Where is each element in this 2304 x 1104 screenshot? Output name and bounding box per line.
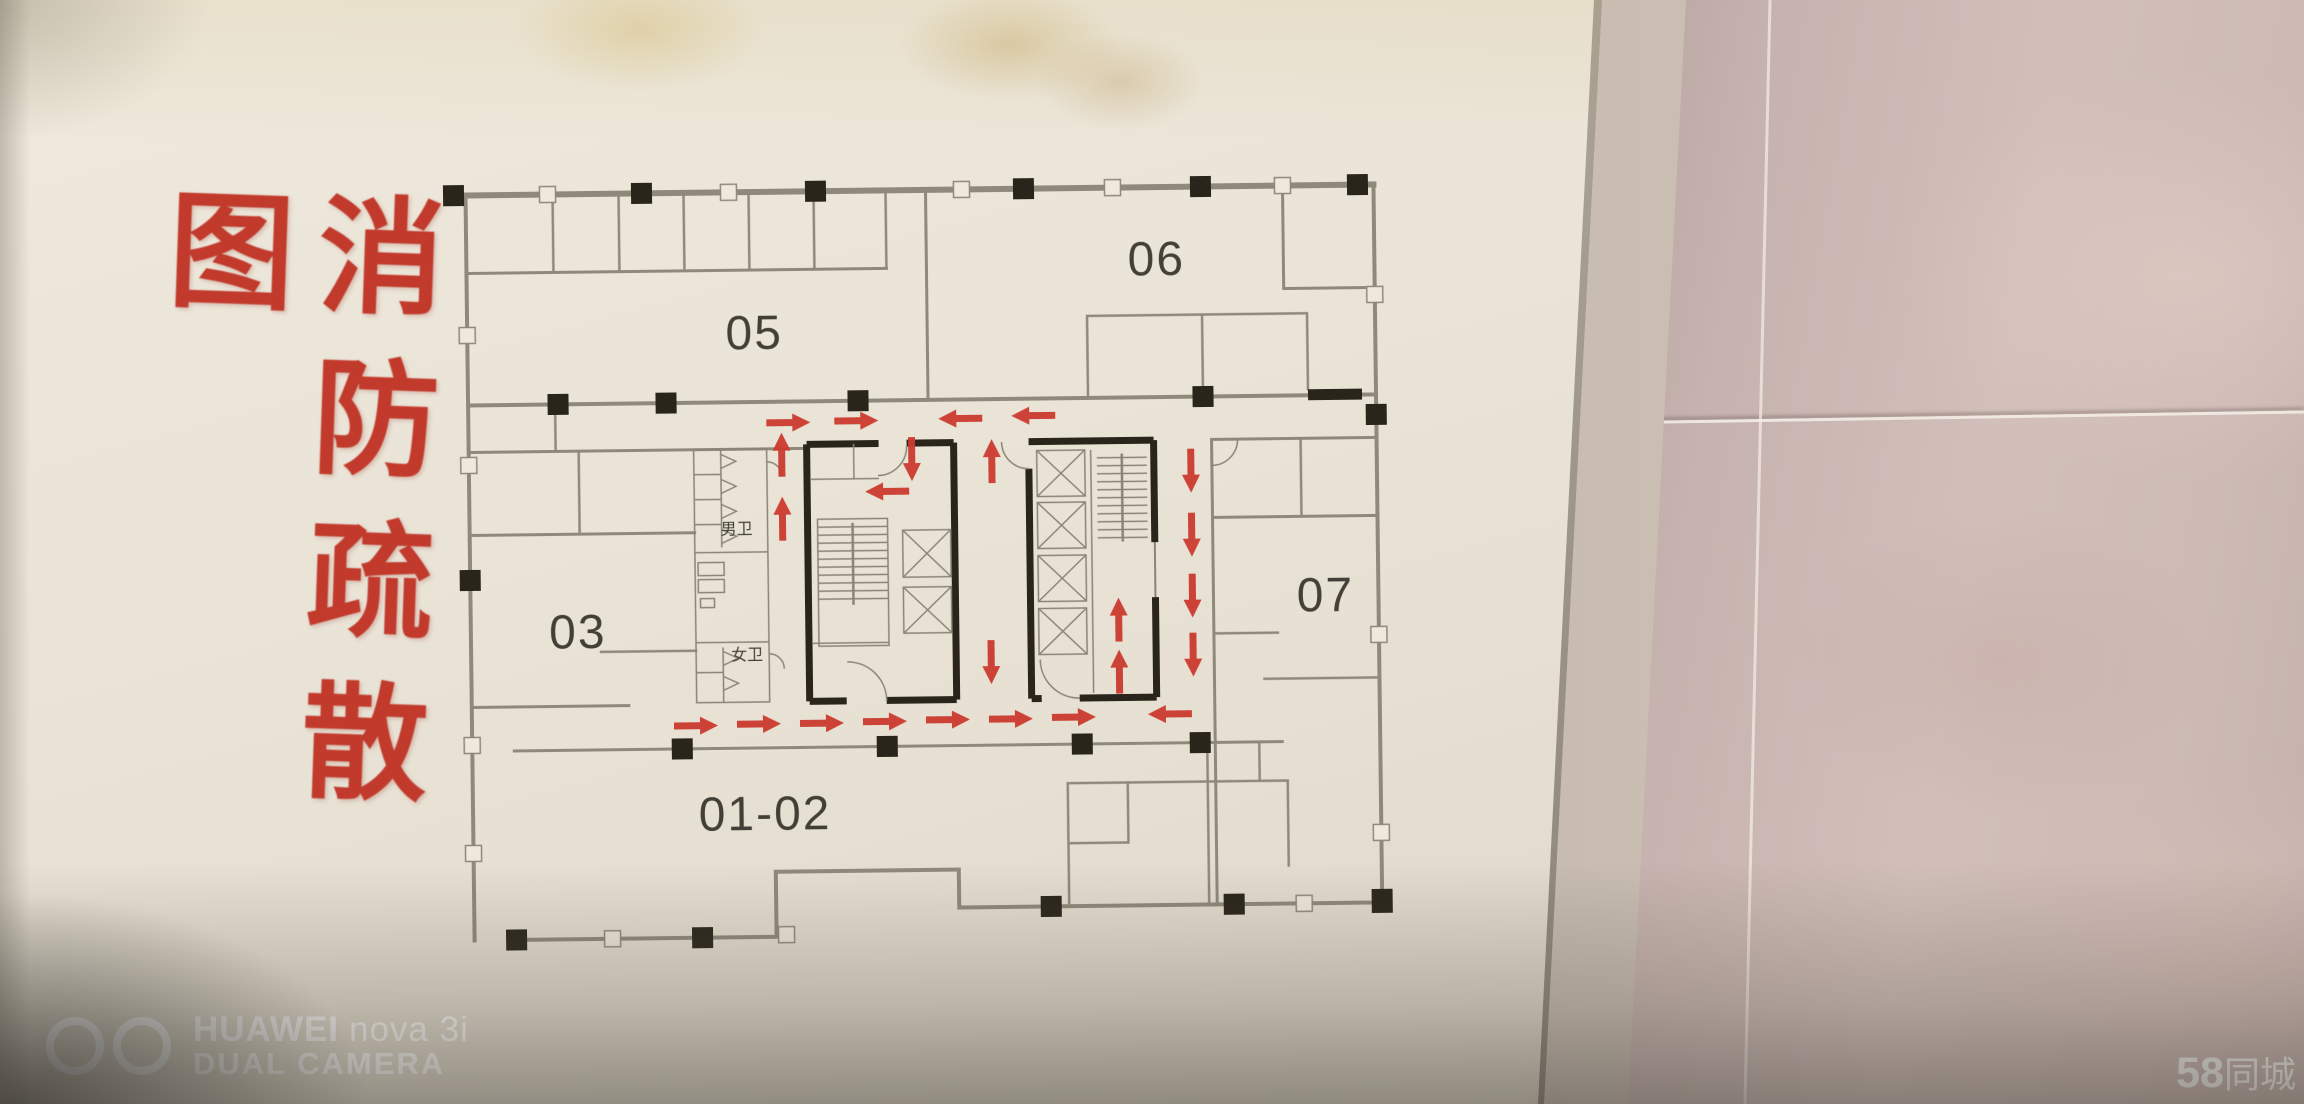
evac-arrow-right — [863, 712, 907, 731]
evac-arrow-down — [1182, 449, 1201, 493]
evac-arrow-right — [766, 413, 810, 432]
evac-arrow-up — [1109, 597, 1128, 641]
evac-arrow-left — [938, 409, 982, 428]
evac-arrow-down — [1182, 513, 1201, 557]
room-label-05: 05 — [725, 307, 783, 361]
camera-watermark: HUAWEInova 3i DUAL CAMERA — [46, 1012, 469, 1080]
tile-grout-vertical — [1743, 0, 1771, 1104]
stair-core-left — [807, 443, 957, 702]
camera-circle-icon — [113, 1017, 171, 1075]
camera-model: nova 3i — [349, 1010, 469, 1049]
dual-camera-icon — [46, 1017, 171, 1075]
evac-arrow-right — [989, 710, 1033, 729]
evac-arrow-left — [865, 482, 909, 501]
site-watermark-number: 58 — [2176, 1049, 2224, 1097]
evac-arrow-left — [1011, 406, 1055, 425]
camera-caption: DUAL CAMERA — [193, 1048, 469, 1080]
camera-circle-icon — [46, 1017, 104, 1075]
evac-arrow-down — [982, 640, 1001, 684]
tile-grout-horizontal — [1635, 410, 2304, 424]
site-watermark: 58同城 — [2176, 1046, 2296, 1098]
evac-arrow-down — [1184, 633, 1203, 677]
evac-arrow-up — [1110, 649, 1129, 693]
evac-arrow-right — [926, 710, 970, 729]
room-label-03: 03 — [549, 606, 607, 660]
evac-arrow-right — [800, 714, 844, 733]
evac-arrow-right — [1052, 708, 1096, 727]
camera-brand: HUAWEI — [193, 1010, 339, 1049]
evac-arrow-up — [772, 433, 791, 477]
evac-arrow-up — [983, 439, 1002, 483]
evac-arrow-down — [1183, 574, 1202, 618]
evac-arrow-left — [1148, 705, 1192, 724]
evacuation-title: 消防疏散图 — [121, 183, 448, 983]
site-watermark-name: 同城 — [2224, 1054, 2296, 1095]
evac-arrow-right — [737, 715, 781, 734]
evac-arrow-right — [834, 411, 878, 430]
evac-arrow-up — [773, 497, 792, 541]
toilet-male-label: 男卫 — [721, 521, 753, 538]
evac-arrow-right — [674, 716, 718, 735]
plan-walls — [451, 184, 1383, 940]
room-label-01-02: 01-02 — [698, 787, 831, 842]
toilet-block — [694, 449, 785, 703]
room-label-07: 07 — [1296, 569, 1354, 623]
evacuation-arrows — [670, 405, 1203, 735]
photo-of-evacuation-sign: 消防疏散图 — [0, 0, 2304, 1104]
camera-watermark-text: HUAWEInova 3i DUAL CAMERA — [193, 1012, 469, 1080]
floor-plan: 0506030701-02 男卫女卫 — [425, 134, 1415, 986]
toilet-female-label: 女卫 — [731, 645, 763, 664]
room-label-06: 06 — [1127, 233, 1185, 287]
